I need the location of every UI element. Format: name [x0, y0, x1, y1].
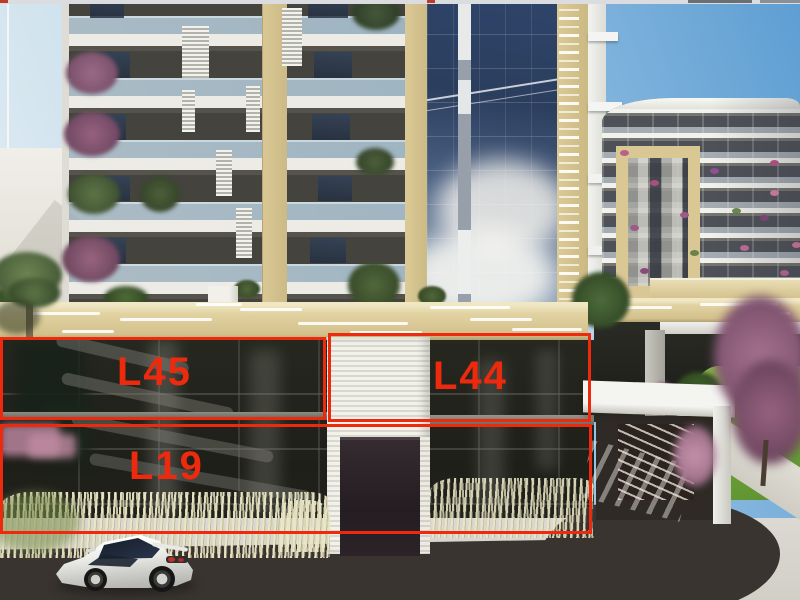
louver-shutter — [216, 150, 232, 196]
window — [314, 52, 352, 78]
car-front-wheel — [84, 568, 107, 591]
artifact-dark-dash — [688, 0, 752, 3]
window — [318, 176, 352, 201]
mullion-strip-white — [458, 4, 471, 60]
sky-artifact-line — [7, 0, 9, 150]
canopy-streak — [470, 318, 532, 321]
balcony-plant-green — [140, 176, 180, 212]
canopy-streak — [240, 308, 302, 311]
unit-label-L44: L44 — [433, 356, 508, 396]
louver-shutter — [236, 208, 252, 258]
artifact-red-dash — [0, 0, 8, 3]
top-artifact-strip — [0, 0, 800, 4]
louver-shutter — [182, 26, 209, 78]
canopy-streak — [430, 306, 510, 309]
mullion-strip-white — [458, 80, 471, 114]
balcony-plant-purple — [66, 52, 118, 94]
balcony-plant-purple — [62, 236, 120, 282]
car-taillight — [168, 557, 175, 562]
unit-label-L19: L19 — [129, 446, 204, 486]
artifact-dark-dash — [760, 0, 800, 3]
unit-label-L45: L45 — [117, 352, 192, 392]
window — [312, 114, 350, 140]
scene: L45 L44 L19 — [0, 0, 800, 600]
slab-end — [588, 32, 618, 41]
car-taillight — [178, 558, 184, 562]
tan-accent-strip — [152, 0, 182, 312]
window — [310, 238, 346, 263]
glass-curtain-wall — [427, 0, 557, 338]
right-wing-upper-tan-band — [650, 278, 800, 300]
balcony-plant-green — [68, 174, 120, 214]
car-rear-wheel — [149, 566, 175, 592]
canopy-streak — [298, 322, 408, 325]
balcony-plant-green — [356, 148, 394, 176]
canopy-streak — [512, 328, 582, 331]
unit-overlay-L45[interactable]: L45 — [0, 337, 326, 420]
canopy-streak — [196, 303, 242, 306]
canopy-streak — [62, 330, 114, 333]
flower-boxes — [620, 150, 629, 156]
unit-overlay-L44[interactable]: L44 — [328, 333, 591, 422]
balcony-plant-purple — [64, 112, 120, 156]
artifact-red-dash — [427, 0, 435, 3]
louver-shutter — [246, 86, 260, 132]
glass-reflection-streak — [427, 75, 557, 102]
mullion-strip-white — [458, 230, 471, 294]
canopy-streak — [120, 318, 212, 321]
unit-overlay-L19[interactable]: L19 — [0, 424, 592, 534]
driveway-asphalt-fill — [300, 560, 660, 600]
car — [54, 528, 200, 600]
canopy-streak — [30, 312, 100, 315]
louver-shutter — [282, 8, 302, 66]
louver-shutter — [182, 90, 195, 132]
carport-column — [713, 406, 731, 524]
shrub-pink — [674, 426, 716, 486]
